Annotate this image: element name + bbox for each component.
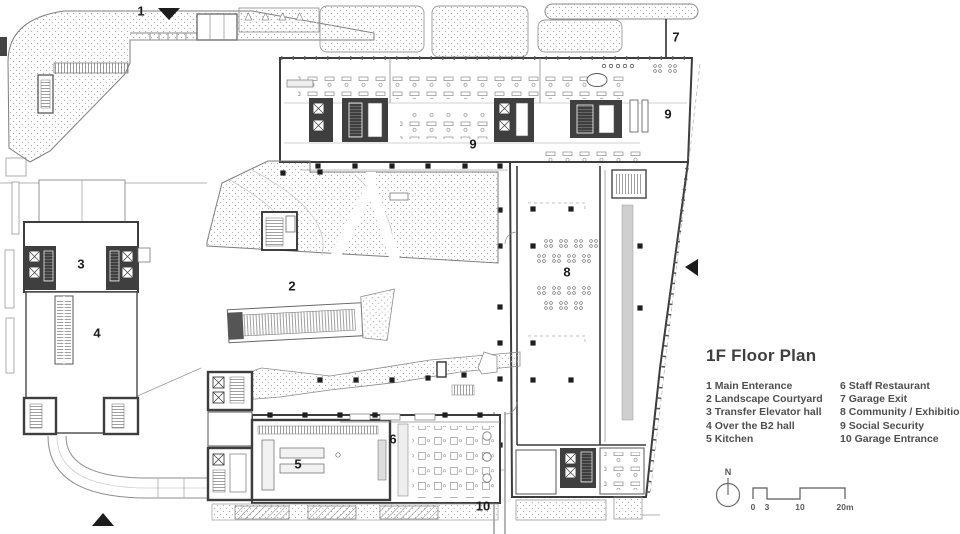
- floor-plan-drawing: [0, 0, 960, 534]
- planter: [308, 506, 356, 519]
- planter: [516, 500, 606, 520]
- b2-escalators: [55, 296, 73, 364]
- entrance-canopy: [197, 14, 237, 40]
- hall3-core-west: [24, 246, 56, 290]
- plan-label-9-west: 9: [469, 138, 476, 151]
- legend-item: 3 Transfer Elevator hall: [706, 406, 824, 419]
- b2-stair-core-west: [24, 398, 56, 434]
- scale-bar: 0 3 10 20m: [751, 488, 854, 512]
- bench: [390, 193, 408, 200]
- legend-item: 5 Kitchen: [706, 433, 824, 446]
- legend-item: 8 Community / Exhibition: [840, 406, 960, 419]
- plan-label-4: 4: [93, 327, 100, 340]
- transfer-elevator-hall: [24, 180, 150, 292]
- plan-label-3: 3: [77, 258, 84, 271]
- workstation-row-mid: [400, 112, 488, 139]
- legend-item: 7 Garage Exit: [840, 393, 960, 406]
- b2-stair-core-east: [104, 398, 138, 434]
- courtyard-stair: [262, 212, 297, 250]
- southwest-road-curve: [48, 436, 209, 498]
- office-core-1: [309, 98, 333, 142]
- right-wing-south-rooms: [516, 448, 644, 494]
- kitchen: [252, 420, 390, 500]
- landscape-escalator: [38, 75, 53, 113]
- meeting-table: [587, 74, 607, 87]
- landscape-steps: [54, 63, 128, 73]
- legend-column-2: 6 Staff Restaurant 7 Garage Exit 8 Commu…: [840, 380, 960, 446]
- planter: [614, 497, 642, 519]
- top-office-wing: [280, 58, 692, 162]
- kitchen-core-north: [208, 372, 252, 410]
- scale-tick: 20m: [836, 502, 853, 512]
- office-core-2: [342, 98, 388, 142]
- legend-item: 10 Garage Entrance: [840, 433, 960, 446]
- hall3-core-east: [106, 246, 138, 290]
- north-compass-icon: N: [717, 467, 740, 507]
- over-b2-hall: [24, 292, 138, 434]
- plan-label-8: 8: [563, 266, 570, 279]
- legend-column-1: 1 Main Enterance 2 Landscape Courtyard 3…: [706, 380, 824, 446]
- landscape-courtyard: [207, 161, 498, 263]
- office-core-3: [494, 98, 534, 142]
- legend-item: 9 Social Security: [840, 420, 960, 433]
- legend-item: 1 Main Enterance: [706, 380, 824, 393]
- tree-band: [239, 8, 319, 32]
- north-colonnade: [300, 163, 508, 170]
- plan-label-1: 1: [137, 5, 144, 18]
- plan-label-5: 5: [294, 458, 301, 471]
- scale-tick: 3: [765, 502, 770, 512]
- legend-item: 4 Over the B2 hall: [706, 420, 824, 433]
- vent-tower: [437, 362, 446, 377]
- compass-north-label: N: [725, 467, 732, 477]
- workstation-row-north: [298, 72, 628, 99]
- entrance-arrow-south-icon: [92, 513, 114, 526]
- courtyard-ramp: [227, 289, 397, 349]
- interior-ramp: [622, 205, 633, 420]
- entrance-arrow-east-icon: [685, 259, 698, 276]
- scale-tick: 0: [751, 502, 756, 512]
- restaurant-berm: [243, 352, 520, 400]
- legend-title: 1F Floor Plan: [706, 346, 956, 366]
- hall8-stair: [612, 170, 646, 198]
- planter: [380, 506, 438, 519]
- office-core-4: [570, 100, 622, 138]
- floor-plan-canvas: 1 7 9 9 3 4 2 8 5 6 10 1F Floor Plan 1 M…: [0, 0, 960, 534]
- compass-and-scalebar: N 0 3 10 20m: [700, 462, 960, 534]
- plan-label-6: 6: [389, 433, 396, 446]
- plan-label-2: 2: [288, 280, 295, 293]
- plan-label-9-east: 9: [664, 108, 671, 121]
- workstation-row-south: [545, 147, 643, 161]
- plan-label-7: 7: [672, 31, 679, 44]
- planter: [235, 506, 289, 519]
- legend-item: 6 Staff Restaurant: [840, 380, 960, 393]
- plan-label-10: 10: [476, 500, 490, 513]
- reception-counter: [287, 80, 313, 87]
- kitchen-core-south: [208, 448, 252, 500]
- legend: 1F Floor Plan 1 Main Enterance 2 Landsca…: [706, 346, 956, 446]
- scale-tick: 10: [795, 502, 805, 512]
- legend-item: 2 Landscape Courtyard: [706, 393, 824, 406]
